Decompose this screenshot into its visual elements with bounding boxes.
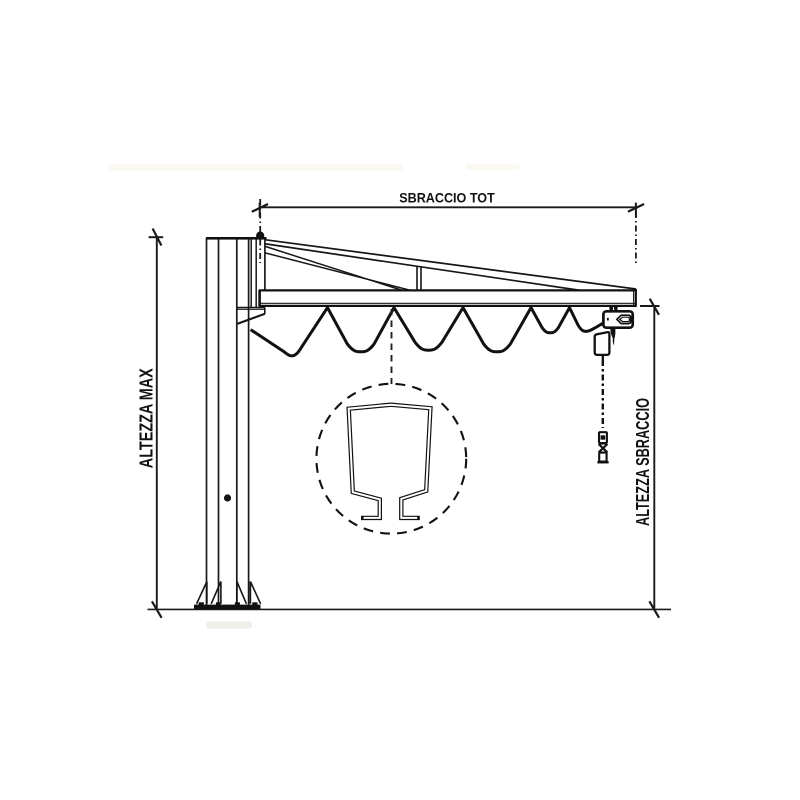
svg-text:ALTEZZA SBRACCIO: ALTEZZA SBRACCIO xyxy=(632,398,653,526)
svg-text:ALTEZZA MAX: ALTEZZA MAX xyxy=(136,368,157,468)
svg-text:SBRACCIO TOT: SBRACCIO TOT xyxy=(399,189,495,205)
